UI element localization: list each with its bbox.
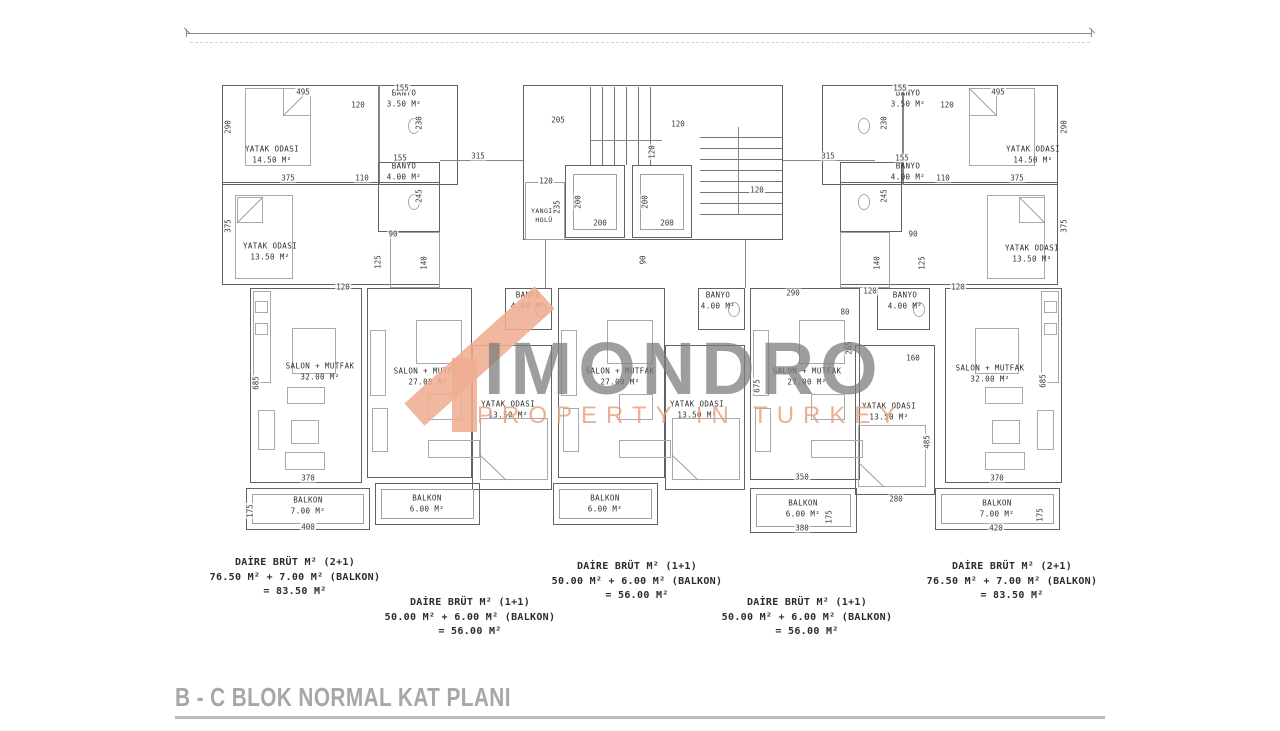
- balcony-label: BALKON6.00 M²: [410, 494, 444, 515]
- dim-label: 400: [300, 523, 316, 532]
- dim-label: 120: [670, 120, 686, 129]
- dim-label: 90: [907, 230, 918, 239]
- room-label-yatak-odasi: YATAK ODASI13.50 M²: [243, 242, 297, 263]
- dim-label: 155: [392, 154, 408, 163]
- dim-label: 200: [574, 194, 583, 210]
- title-rule: [175, 716, 1105, 719]
- dim-label: 200: [641, 194, 650, 210]
- dim-label: 290: [785, 289, 801, 298]
- floor-plan-title: B - C BLOK NORMAL KAT PLANI: [175, 682, 511, 713]
- dim-label: 90: [387, 230, 398, 239]
- room-label-banyo: BANYO4.00 M²: [888, 291, 922, 312]
- dim-label: 315: [820, 152, 836, 161]
- floor-plan-canvas: YATAK ODASI14.50 M² BANYO3.50 M² YATAK O…: [0, 0, 1280, 731]
- dim-label: 235: [553, 199, 562, 215]
- dim-label: 380: [794, 524, 810, 533]
- room-label-yatak-odasi: YATAK ODASI14.50 M²: [1006, 145, 1060, 166]
- dim-label: 315: [470, 152, 486, 161]
- dim-label: 375: [1060, 218, 1069, 234]
- room-label-banyo: BANYO4.00 M²: [891, 162, 925, 183]
- dim-label: 230: [415, 115, 424, 131]
- dim-label: 120: [538, 177, 554, 186]
- dim-label: 120: [862, 287, 878, 296]
- dim-label: 370: [300, 474, 316, 483]
- dim-label: 155: [894, 154, 910, 163]
- dim-label: 230: [880, 115, 889, 131]
- dim-label: 155: [394, 84, 410, 93]
- room-label-yatak-odasi: YATAK ODASI13.50 M²: [1005, 244, 1059, 265]
- dim-label: 685: [252, 375, 261, 391]
- room-label-salon-mutfak: SALON + MUTFAK32.00 M²: [956, 364, 1025, 385]
- dim-label: 200: [592, 219, 608, 228]
- dim-label: 110: [354, 174, 370, 183]
- dim-label: 120: [335, 283, 351, 292]
- room-label-banyo: BANYO4.00 M²: [387, 162, 421, 183]
- dim-label: 120: [648, 144, 657, 160]
- dim-label: 160: [905, 354, 921, 363]
- dim-label: 110: [935, 174, 951, 183]
- dim-label: 175: [1036, 507, 1045, 523]
- room-label-salon-mutfak: SALON + MUTFAK32.00 M²: [286, 362, 355, 383]
- dim-label: 120: [950, 283, 966, 292]
- dim-label: 370: [989, 474, 1005, 483]
- dim-label: 125: [918, 255, 927, 271]
- dim-label: 175: [825, 509, 834, 525]
- dim-label: 350: [794, 473, 810, 482]
- room-label-yatak-odasi: YATAK ODASI14.50 M²: [245, 145, 299, 166]
- watermark-tagline: PROPERTY IN TURKEY: [477, 402, 904, 430]
- watermark-logo-mark: [452, 358, 477, 432]
- dim-label: 90: [639, 254, 648, 265]
- dim-label: 685: [1039, 373, 1048, 389]
- dim-label: 375: [224, 218, 233, 234]
- dim-label: 495: [295, 88, 311, 97]
- dim-label: 140: [420, 255, 429, 271]
- dim-label: 175: [246, 503, 255, 519]
- dim-label: 485: [923, 434, 932, 450]
- dim-label: 375: [1009, 174, 1025, 183]
- apartment-summary: DAİRE BRÜT M² (1+1)50.00 M² + 6.00 M² (B…: [722, 596, 893, 640]
- balcony-label: BALKON6.00 M²: [786, 499, 820, 520]
- dim-label: 120: [350, 101, 366, 110]
- dim-label: 290: [224, 119, 233, 135]
- dim-label: 120: [939, 101, 955, 110]
- dim-label: 80: [839, 308, 850, 317]
- balcony-label: BALKON7.00 M²: [980, 499, 1014, 520]
- dim-label: 205: [550, 116, 566, 125]
- dim-label: 375: [280, 174, 296, 183]
- dim-label: 245: [415, 188, 424, 204]
- dim-label: 155: [892, 84, 908, 93]
- dim-label: 120: [749, 186, 765, 195]
- dim-label: 495: [990, 88, 1006, 97]
- apartment-summary: DAİRE BRÜT M² (2+1)76.50 M² + 7.00 M² (B…: [210, 556, 381, 600]
- balcony-label: BALKON6.00 M²: [588, 494, 622, 515]
- room-label-banyo: BANYO4.00 M²: [701, 291, 735, 312]
- dim-label: 420: [988, 524, 1004, 533]
- dim-label: 140: [873, 255, 882, 271]
- apartment-summary: DAİRE BRÜT M² (1+1)50.00 M² + 6.00 M² (B…: [552, 560, 723, 604]
- dim-label: 290: [1060, 119, 1069, 135]
- dim-label: 125: [374, 254, 383, 270]
- apartment-summary: DAİRE BRÜT M² (2+1)76.50 M² + 7.00 M² (B…: [927, 560, 1098, 604]
- dim-label: 200: [659, 219, 675, 228]
- watermark-brand: IMONDRO: [484, 326, 884, 411]
- balcony-label: BALKON7.00 M²: [291, 496, 325, 517]
- apartment-summary: DAİRE BRÜT M² (1+1)50.00 M² + 6.00 M² (B…: [385, 596, 556, 640]
- dim-label: 280: [888, 495, 904, 504]
- dim-label: 245: [880, 188, 889, 204]
